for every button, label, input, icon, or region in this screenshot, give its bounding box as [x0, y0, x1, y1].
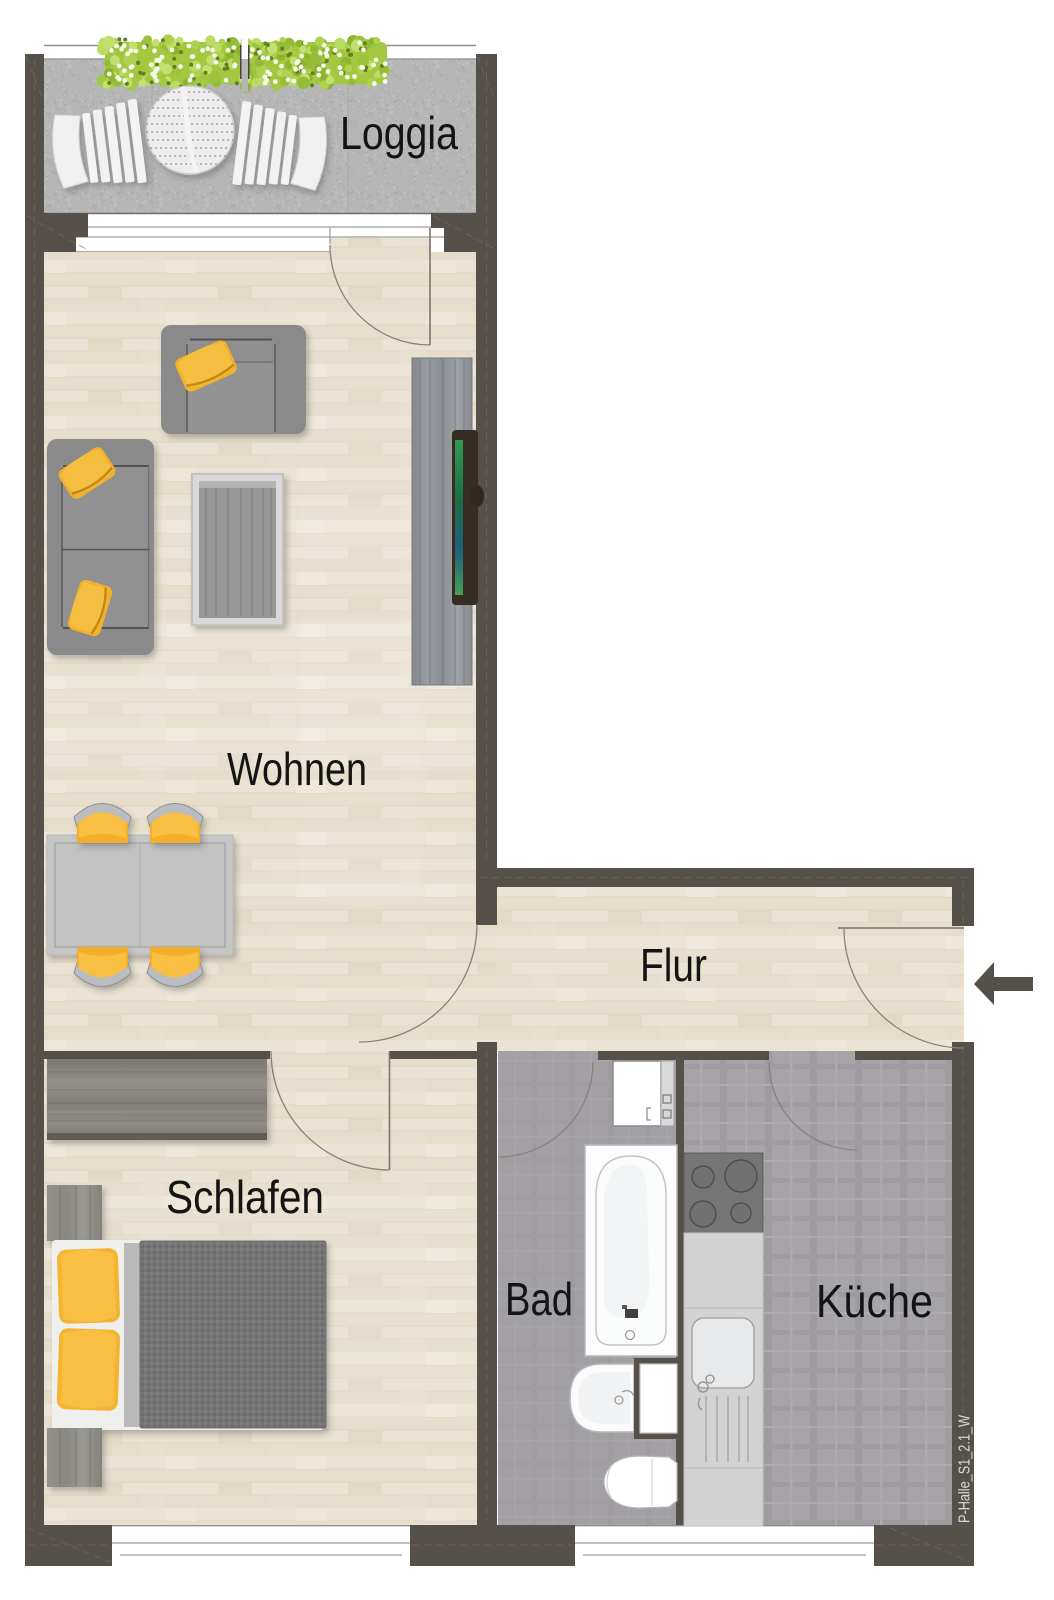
- svg-text:Flur: Flur: [640, 939, 707, 991]
- svg-text:P-Halle_S1_2.1_W: P-Halle_S1_2.1_W: [957, 1414, 974, 1523]
- svg-text:Schlafen: Schlafen: [166, 1171, 324, 1223]
- svg-text:Loggia: Loggia: [340, 107, 458, 159]
- svg-text:Bad: Bad: [505, 1273, 573, 1325]
- svg-text:Küche: Küche: [816, 1275, 933, 1327]
- svg-text:Wohnen: Wohnen: [227, 743, 367, 795]
